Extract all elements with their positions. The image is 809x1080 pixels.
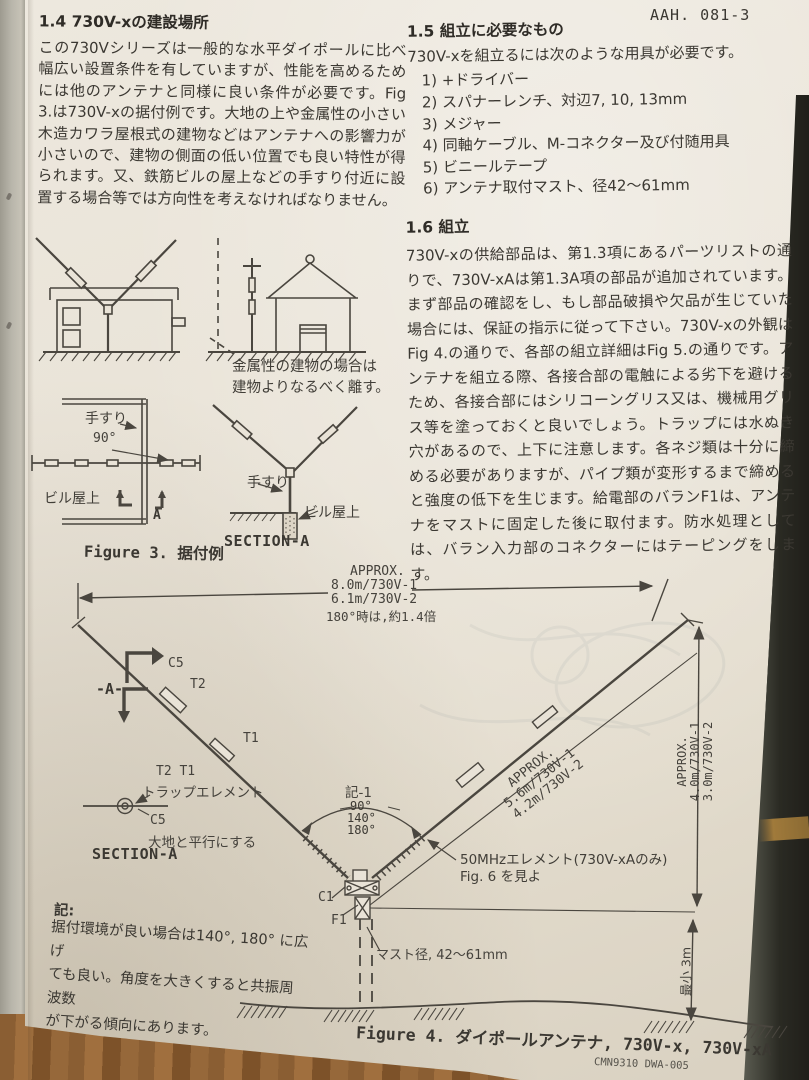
c1-label: C1 bbox=[318, 890, 334, 905]
section-1-5-heading: 1.5 組立に必要なもの bbox=[407, 14, 795, 41]
section-1-6-heading: 1.6 組立 bbox=[405, 210, 791, 237]
section-a-title-fig3: SECTION-A bbox=[224, 532, 310, 550]
dim-min-3m: 最小 3m bbox=[676, 927, 695, 1017]
f1-label: F1 bbox=[331, 913, 347, 928]
element-50mhz-label: 50MHzエレメント(730V-xAのみ) Fig. 6 を見よ bbox=[460, 852, 667, 886]
angle-180: 180° bbox=[347, 823, 376, 837]
handrail-label-section: 手すり bbox=[247, 472, 289, 492]
section-marker-a: -A- bbox=[96, 680, 123, 698]
c5-label: C5 bbox=[168, 656, 184, 671]
trap-element-label: トラップエレメント bbox=[142, 781, 264, 801]
dim-top-approx: APPROX. bbox=[350, 564, 405, 579]
fig4-note-body: 据付環境が良い場合は140°, 180° に広げ ても良い。角度を大きくすると共… bbox=[45, 916, 312, 1049]
section-1-5-intro: 730V-xを組立るには次のような用具が必要です。 bbox=[407, 41, 795, 68]
handrail-label-plan: 手すり bbox=[85, 408, 127, 428]
inset-c5-label: C5 bbox=[150, 813, 166, 828]
metal-building-note: 金属性の建物の場合は 建物よりなるべく離す。 bbox=[232, 357, 390, 399]
tool-list: 1) +ドライバー 2) スパナーレンチ、対辺7, 10, 13mm 3) メジ… bbox=[421, 66, 797, 201]
dim-top-v2: 6.1m/730V-2 bbox=[331, 592, 417, 607]
section-1-4-heading: 1.4 730V-xの建設場所 bbox=[39, 9, 407, 34]
section-1-4-body: この730Vシリーズは一般的な水平ダイポールに比べ幅広い設置条件を有していますが… bbox=[37, 37, 406, 211]
rooftop-label-section: ビル屋上 bbox=[304, 502, 360, 522]
t2-label: T2 bbox=[190, 677, 206, 692]
section-1-6-body: 730V-xの供給部品は、第1.3項にあるパーツリストの通りで、730V-xAは… bbox=[406, 238, 797, 586]
dim-right-vertical-text: APPROX. 4.0m/730V-1 3.0m/730V-2 bbox=[676, 684, 715, 839]
section-1-5: 1.5 組立に必要なもの 730V-xを組立るには次のような用具が必要です。 1… bbox=[407, 14, 797, 200]
mast-diameter-label: マスト径, 42〜61mm bbox=[376, 944, 508, 963]
angle-90-label: 90° bbox=[93, 431, 116, 446]
inset-traps-label: T2 T1 bbox=[156, 764, 195, 779]
dim-top-v1: 8.0m/730V-1 bbox=[331, 578, 417, 593]
scanned-manual-page: AAH. 081-3 1.4 730V-xの建設場所 この730Vシリーズは一般… bbox=[0, 0, 809, 1080]
dim-top-note180: 180°時は,約1.4倍 bbox=[326, 606, 436, 625]
rooftop-label-plan: ビル屋上 bbox=[44, 488, 100, 508]
section-arrow-label: A bbox=[153, 508, 161, 523]
section-1-6: 1.6 組立 730V-xの供給部品は、第1.3項にあるパーツリストの通りで、7… bbox=[405, 210, 796, 586]
note1-title: 記-1 bbox=[345, 781, 372, 801]
t1-label: T1 bbox=[243, 731, 259, 746]
figure3-caption: Figure 3. 据付例 bbox=[84, 540, 224, 564]
section-1-4: 1.4 730V-xの建設場所 この730Vシリーズは一般的な水平ダイポールに比… bbox=[37, 9, 407, 211]
adjacent-page-edge bbox=[0, 0, 28, 1080]
section-a-title-fig4: SECTION-A bbox=[92, 845, 178, 863]
